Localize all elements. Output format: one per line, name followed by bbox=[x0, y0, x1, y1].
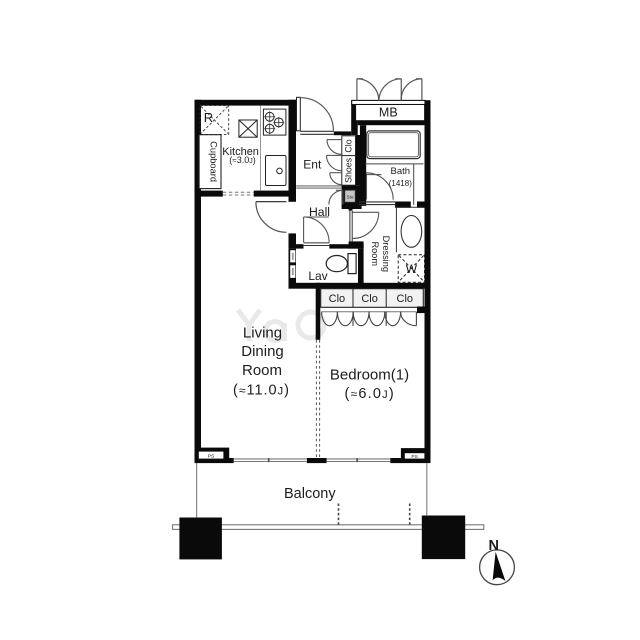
svg-text:(≈3.0J): (≈3.0J) bbox=[229, 155, 255, 165]
svg-text:Clo: Clo bbox=[344, 139, 354, 152]
svg-text:(≈6.0J): (≈6.0J) bbox=[345, 386, 395, 402]
svg-text:Bath: Bath bbox=[391, 166, 411, 177]
svg-text:Dressing: Dressing bbox=[381, 236, 391, 272]
svg-text:Clo: Clo bbox=[329, 293, 346, 305]
svg-text:N: N bbox=[489, 538, 499, 554]
svg-text:Balcony: Balcony bbox=[284, 486, 336, 502]
svg-text:PS: PS bbox=[208, 453, 214, 459]
svg-text:Bedroom(1): Bedroom(1) bbox=[330, 366, 409, 383]
svg-text:Living: Living bbox=[243, 324, 282, 341]
svg-text:Dining: Dining bbox=[241, 343, 284, 360]
svg-text:R: R bbox=[204, 110, 213, 125]
svg-text:Cupboard: Cupboard bbox=[208, 141, 218, 182]
svg-text:Sto: Sto bbox=[347, 194, 354, 199]
svg-text:(≈11.0J): (≈11.0J) bbox=[233, 383, 290, 399]
svg-text:W: W bbox=[406, 262, 418, 276]
svg-text:PS: PS bbox=[411, 454, 417, 460]
svg-text:(1418): (1418) bbox=[389, 179, 412, 188]
svg-text:Shoes: Shoes bbox=[344, 157, 354, 183]
svg-text:Clo: Clo bbox=[361, 293, 378, 305]
svg-text:Lav: Lav bbox=[308, 269, 327, 283]
svg-text:Room: Room bbox=[242, 362, 282, 379]
svg-text:MB: MB bbox=[379, 106, 398, 120]
svg-text:Clo: Clo bbox=[397, 293, 414, 305]
svg-text:Ent: Ent bbox=[303, 158, 322, 172]
svg-text:Room: Room bbox=[370, 242, 380, 267]
